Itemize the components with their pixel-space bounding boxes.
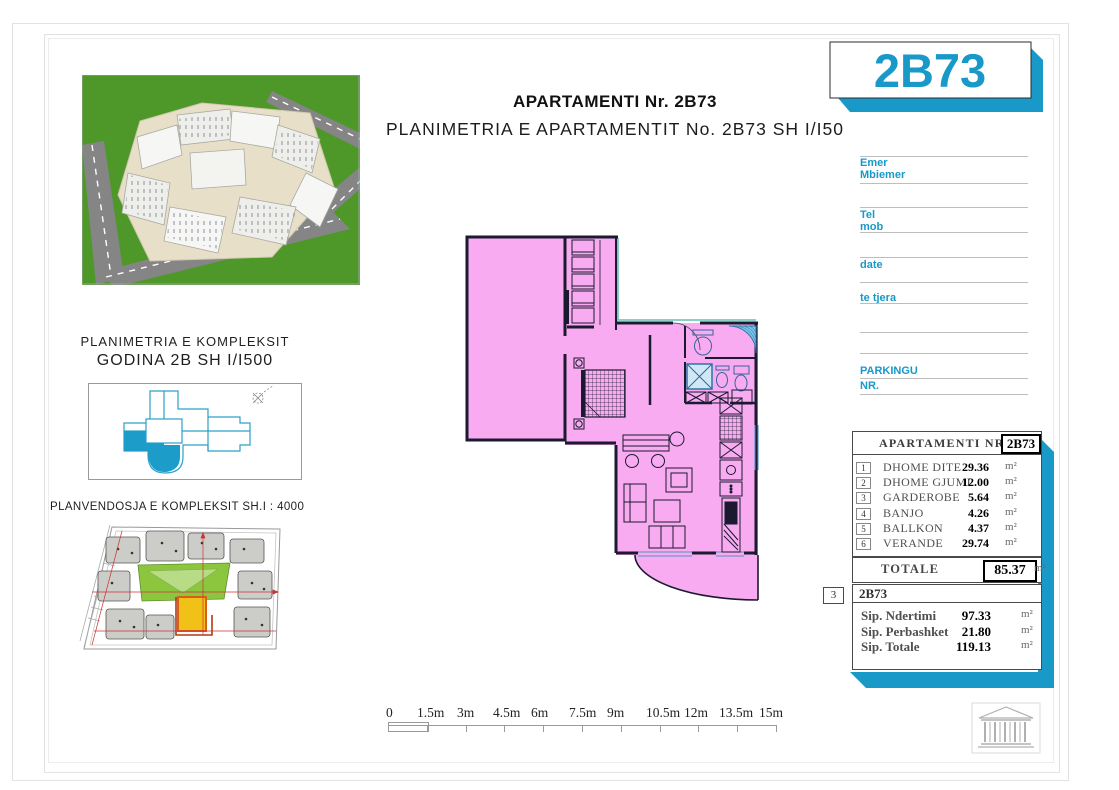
summary-row: Sip. Perbashket21.80m² (853, 624, 1041, 640)
room-area: 29.74 (947, 536, 989, 551)
parking-label: PARKINGU (860, 365, 918, 377)
scale-label: 13.5m (719, 705, 753, 721)
row-number-box: 6 (856, 538, 871, 550)
site-plan-caption: PLANVENDOSJA E KOMPLEKSIT SH.I : 4000 (50, 501, 330, 513)
scale-tick (660, 725, 661, 732)
scale-label: 15m (759, 705, 783, 721)
total-value: 85.37 (983, 560, 1037, 582)
summary-area: 97.33 (913, 608, 991, 624)
total-box: TOTALE 85.37 m² (852, 557, 1042, 583)
complex-plan-title-1: PLANIMETRIA E KOMPLEKSIT (60, 334, 310, 349)
area-table-header: APARTAMENTI NR. 2B73 (853, 432, 1041, 455)
plan-sheet: APARTAMENTI Nr. 2B73 PLANIMETRIA E APART… (0, 0, 1119, 790)
door-gap (562, 336, 568, 354)
area-unit: m² (1005, 460, 1017, 472)
surname-label: Mbiemer (860, 169, 905, 181)
summary-name: Sip. Totale (861, 639, 920, 655)
summary-area: 21.80 (913, 624, 991, 640)
scale-first-segment-box (388, 722, 429, 732)
scale-tick (466, 725, 467, 732)
form-line (860, 394, 1028, 395)
scale-label: 12m (684, 705, 708, 721)
room-area: 29.36 (947, 460, 989, 475)
scale-label: 7.5m (569, 705, 596, 721)
teal-guide-line (618, 238, 756, 320)
room-name: VERANDE (883, 536, 943, 551)
scale-label: 1.5m (417, 705, 444, 721)
area-unit: m² (1005, 521, 1017, 533)
scale-label: 4.5m (493, 705, 520, 721)
area-unit: m² (1005, 490, 1017, 502)
building-3d-render (82, 75, 360, 285)
scale-tick (427, 725, 428, 732)
row-number-box: 3 (856, 492, 871, 504)
area-row: 5BALLKON4.37m² (853, 521, 1041, 536)
row-number-box: 4 (856, 508, 871, 520)
date-label: date (860, 259, 883, 271)
row-number-box: 5 (856, 523, 871, 535)
apartment-table-rows: 1DHOME DITE29.36m²2DHOME GJUMI12.00m²3GA… (853, 460, 1041, 551)
form-line (860, 207, 1028, 208)
summary-unit: m² (1021, 624, 1033, 636)
scale-tick (698, 725, 699, 732)
wall-stub (566, 290, 569, 324)
total-label: TOTALE (881, 562, 939, 577)
form-line (860, 378, 1028, 379)
tel-label: Tel (860, 209, 875, 221)
summary-unit: m² (1021, 608, 1033, 620)
summary-box: 2B73 Sip. Ndertimi97.33m²Sip. Perbashket… (852, 584, 1042, 670)
area-table-box: APARTAMENTI NR. 2B73 1DHOME DITE29.36m²2… (852, 431, 1042, 557)
form-line (860, 353, 1028, 354)
scale-tick (388, 725, 389, 732)
summary-title: 2B73 (859, 586, 887, 602)
form-line (860, 282, 1028, 283)
form-line (860, 183, 1028, 184)
scale-label: 3m (457, 705, 474, 721)
table-header-label: APARTAMENTI NR. (879, 436, 1009, 451)
page-title: APARTAMENTI Nr. 2B73 (370, 92, 860, 112)
summary-ref-box: 3 (823, 587, 844, 604)
bed (581, 370, 625, 417)
scale-tick (543, 725, 544, 732)
logo-text: 2B73 (874, 44, 986, 97)
room-area: 4.26 (947, 506, 989, 521)
page-subtitle: PLANIMETRIA E APARTAMENTIT No. 2B73 SH I… (330, 119, 900, 140)
row-number-box: 1 (856, 462, 871, 474)
site-plan (78, 523, 288, 657)
area-unit: m² (1005, 475, 1017, 487)
table-header-unit-badge: 2B73 (1001, 434, 1041, 454)
room-area: 4.37 (947, 521, 989, 536)
complex-plan-title-2: GODINA 2B SH I/I500 (60, 352, 310, 370)
complex-plan-diagram (88, 383, 302, 480)
scale-label: 0 (386, 705, 393, 721)
unit-logo: 2B73 (828, 36, 1048, 120)
form-line (860, 232, 1028, 233)
room-fill (467, 237, 758, 600)
area-row: 4BANJO4.26m² (853, 506, 1041, 521)
name-label: Emer (860, 157, 888, 169)
summary-row: Sip. Ndertimi97.33m² (853, 608, 1041, 624)
scale-tick (737, 725, 738, 732)
area-unit: m² (1005, 506, 1017, 518)
form-line (860, 303, 1028, 304)
temple-logo-icon (971, 702, 1041, 754)
summary-row: Sip. Totale119.13m² (853, 639, 1041, 655)
highlighted-building (178, 597, 206, 631)
area-unit: m² (1005, 536, 1017, 548)
row-number-box: 2 (856, 477, 871, 489)
area-row: 2DHOME GJUMI12.00m² (853, 475, 1041, 490)
scale-tick (504, 725, 505, 732)
scale-label: 10.5m (646, 705, 680, 721)
area-row: 6VERANDE29.74m² (853, 536, 1041, 551)
floor-plan (460, 230, 760, 606)
parking-nr-label: NR. (860, 380, 879, 392)
room-area: 12.00 (947, 475, 989, 490)
summary-area: 119.13 (913, 639, 991, 655)
scale-tick (582, 725, 583, 732)
room-name: BANJO (883, 506, 924, 521)
total-unit: m² (1034, 562, 1046, 574)
summary-table-rows: Sip. Ndertimi97.33m²Sip. Perbashket21.80… (853, 608, 1041, 655)
courtyard (146, 419, 182, 443)
scale-tick (776, 725, 777, 732)
scale-label: 6m (531, 705, 548, 721)
area-row: 1DHOME DITE29.36m² (853, 460, 1041, 475)
scale-bar: 01.5m3m4.5m6m7.5m9m10.5m12m13.5m15m (375, 700, 795, 740)
area-row: 3GARDEROBE5.64m² (853, 490, 1041, 505)
room-name: BALLKON (883, 521, 943, 536)
form-line (860, 257, 1028, 258)
room-area: 5.64 (947, 490, 989, 505)
scale-tick (621, 725, 622, 732)
form-line (860, 332, 1028, 333)
summary-header: 2B73 (853, 585, 1041, 603)
scale-label: 9m (607, 705, 624, 721)
summary-unit: m² (1021, 639, 1033, 651)
